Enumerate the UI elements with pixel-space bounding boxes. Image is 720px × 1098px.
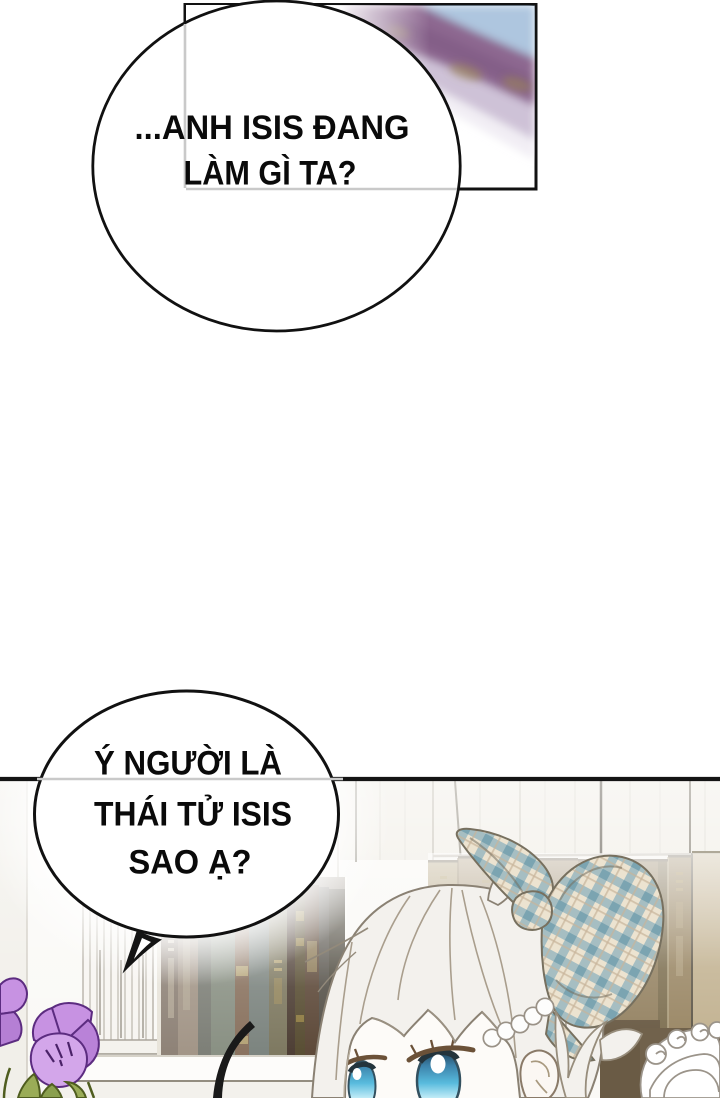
svg-text:THÁI TỬ ISIS: THÁI TỬ ISIS: [94, 796, 292, 834]
svg-text:Ý NGƯỜI LÀ: Ý NGƯỜI LÀ: [94, 745, 282, 783]
svg-text:LÀM GÌ TA?: LÀM GÌ TA?: [184, 155, 357, 193]
svg-text:...ANH ISIS ĐANG: ...ANH ISIS ĐANG: [135, 109, 410, 147]
svg-text:SAO Ạ?: SAO Ạ?: [129, 844, 252, 882]
